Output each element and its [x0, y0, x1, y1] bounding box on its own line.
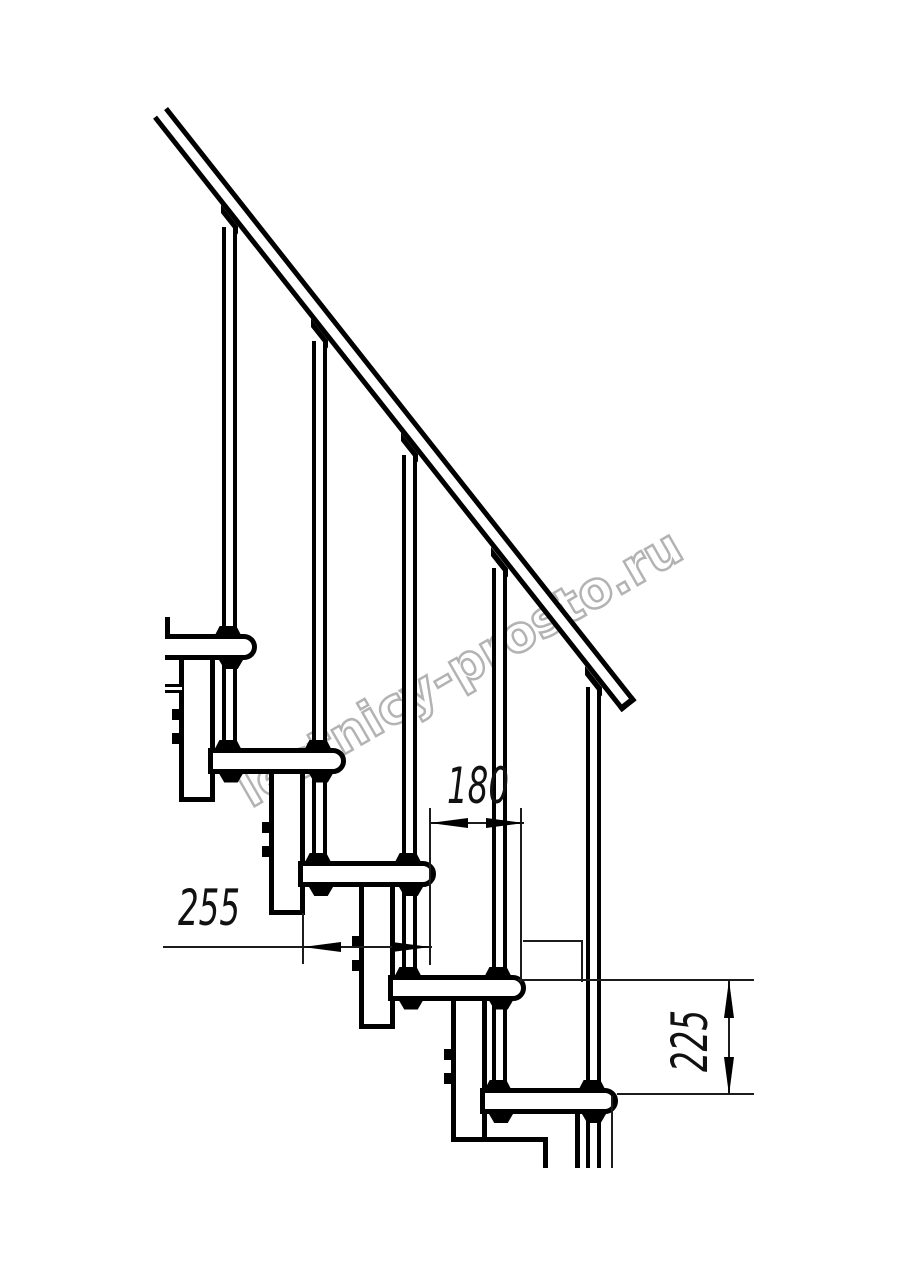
- tread-1: [165, 634, 257, 660]
- tread-3: [298, 861, 436, 887]
- post-foot-flange: [305, 853, 331, 862]
- dimension-label-run: 180: [439, 756, 517, 816]
- dimension-line: [523, 940, 583, 942]
- module-bolt: [172, 733, 181, 744]
- fastener-nut: [399, 1001, 423, 1010]
- dimension-arrow: [430, 818, 468, 828]
- module-bolt: [172, 709, 181, 720]
- dimension-arrow: [724, 1057, 734, 1095]
- module-bolt: [352, 936, 361, 947]
- dimension-line: [163, 946, 432, 948]
- dimension-line: [520, 808, 522, 982]
- spine-module-3: [359, 882, 395, 1029]
- fastener-nut: [309, 887, 333, 896]
- module-bottom-plate: [483, 1137, 548, 1142]
- post-foot-flange: [485, 1080, 511, 1089]
- dimension-arrow: [303, 942, 341, 952]
- lower-module-edge: [575, 1112, 580, 1168]
- dimension-label-tread-depth: 255: [170, 878, 248, 938]
- spine-module-4: [451, 996, 487, 1143]
- lower-module-edge: [543, 1142, 548, 1168]
- module-bolt: [444, 1073, 453, 1084]
- spine-module-2: [269, 769, 305, 916]
- module-bolt: [352, 960, 361, 971]
- tread-4: [388, 975, 526, 1001]
- tread-2: [208, 748, 346, 774]
- baluster-post-3: [402, 455, 417, 984]
- tread-5: [480, 1088, 618, 1114]
- module-bolt: [262, 846, 271, 857]
- module-bolt: [262, 822, 271, 833]
- baluster-post-1: [222, 227, 237, 757]
- post-foot-flange: [215, 740, 241, 749]
- wall-bracket: [165, 684, 182, 693]
- fastener-nut: [489, 1114, 513, 1123]
- dimension-line: [518, 979, 754, 981]
- module-bolt: [444, 1049, 453, 1060]
- baluster-post-4: [492, 568, 507, 1097]
- baluster-post-2: [312, 341, 327, 870]
- dimension-line: [581, 940, 583, 982]
- post-foot-flange: [579, 1080, 605, 1089]
- dimension-line: [617, 1093, 754, 1095]
- dimension-label-rise: 225: [660, 1002, 720, 1080]
- post-foot-flange: [395, 853, 421, 862]
- post-foot-flange: [215, 626, 241, 635]
- dimension-line: [611, 1096, 613, 1168]
- post-foot-flange: [485, 967, 511, 976]
- post-foot-flange: [395, 967, 421, 976]
- dimension-line: [302, 913, 304, 964]
- dimension-line: [429, 808, 431, 965]
- spine-module-1: [179, 655, 215, 802]
- technical-drawing-canvas: lestnicy-prosto.ru 180 255 225: [0, 0, 914, 1280]
- dimension-arrow: [724, 980, 734, 1018]
